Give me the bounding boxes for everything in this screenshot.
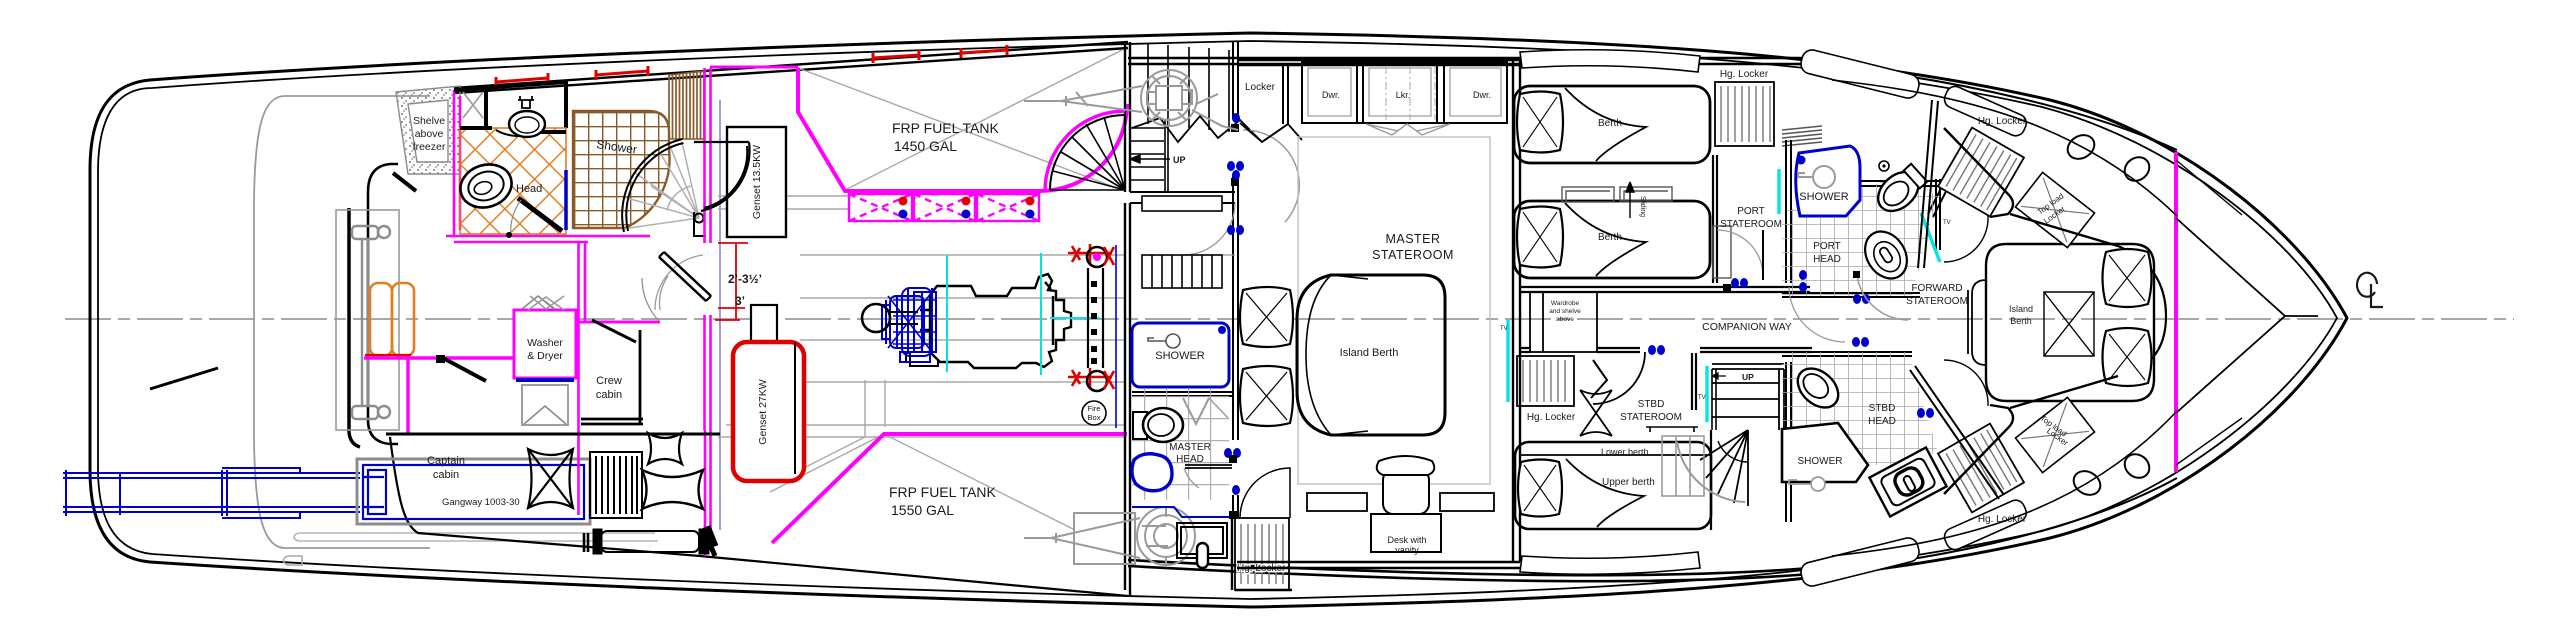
svg-text:Berth: Berth [2010,316,2032,326]
svg-text:FRP FUEL TANK: FRP FUEL TANK [889,484,997,500]
svg-text:STATEROOM: STATEROOM [1620,412,1682,423]
svg-text:STATEROOM: STATEROOM [1372,248,1454,262]
svg-text:SHOWER: SHOWER [1155,350,1205,362]
svg-text:1550 GAL: 1550 GAL [891,502,954,518]
svg-text:PORT: PORT [1813,241,1841,252]
svg-text:Hg. Locker: Hg. Locker [1527,412,1576,423]
svg-text:STBD: STBD [1638,399,1665,410]
svg-text:cabin: cabin [433,469,459,481]
svg-text:Island: Island [2009,304,2033,314]
svg-text:HEAD: HEAD [1813,254,1841,265]
svg-text:Genset 27KW: Genset 27KW [757,379,769,444]
svg-text:vanity: vanity [1395,545,1419,555]
svg-text:2’-3½’: 2’-3½’ [728,272,762,286]
svg-text:Head: Head [516,183,542,195]
svg-text:Captain: Captain [427,455,465,467]
svg-text:Lkr.: Lkr. [1396,90,1411,100]
svg-text:Hg. Locker: Hg. Locker [1720,69,1769,80]
svg-text:3’: 3’ [735,294,745,308]
svg-text:Shelve: Shelve [413,115,445,127]
svg-text:freezer: freezer [413,141,446,153]
svg-text:TV: TV [1500,326,1508,332]
svg-text:Hg. Locker: Hg. Locker [1978,116,2027,127]
svg-text:STATEROOM: STATEROOM [1906,296,1968,307]
svg-text:MASTER: MASTER [1169,442,1211,453]
svg-text:above: above [1556,316,1574,323]
svg-text:Fire: Fire [1088,404,1101,413]
svg-text:SHOWER: SHOWER [1798,456,1843,467]
svg-text:Desk with: Desk with [1387,535,1426,545]
svg-text:MASTER: MASTER [1385,232,1440,246]
svg-text:Wardrobe: Wardrobe [1551,300,1580,307]
svg-text:Sliding: Sliding [1639,196,1646,217]
svg-text:Island Berth: Island Berth [1340,347,1399,359]
svg-text:& Dryer: & Dryer [527,350,563,362]
svg-text:Dwr.: Dwr. [1473,90,1491,100]
svg-text:above: above [415,128,444,140]
svg-text:FORWARD: FORWARD [1911,283,1962,294]
svg-text:Dwr.: Dwr. [1322,90,1340,100]
svg-text:SHOWER: SHOWER [1799,191,1849,203]
svg-text:cabin: cabin [596,389,622,401]
svg-text:Berth: Berth [1598,232,1622,243]
svg-text:and shelve: and shelve [1549,308,1581,315]
svg-text:HEAD: HEAD [1868,416,1896,427]
svg-text:COMPANION WAY: COMPANION WAY [1702,321,1792,333]
svg-text:Washer: Washer [527,337,563,349]
svg-text:Locker: Locker [1245,82,1276,93]
svg-text:STATEROOM: STATEROOM [1720,219,1782,230]
svg-text:TV: TV [1943,220,1951,226]
svg-text:Lower berth: Lower berth [1601,447,1649,457]
svg-text:UP: UP [1173,155,1186,165]
svg-text:FRP FUEL TANK: FRP FUEL TANK [892,120,1000,136]
svg-text:STBD: STBD [1869,403,1896,414]
svg-text:UP: UP [1742,372,1754,382]
svg-text:Genset 13.5KW: Genset 13.5KW [751,145,763,219]
svg-text:Crew: Crew [596,375,622,387]
svg-text:1450 GAL: 1450 GAL [894,138,957,154]
svg-text:Gangway 1003-30: Gangway 1003-30 [442,497,520,508]
svg-text:HEAD: HEAD [1176,454,1204,465]
svg-text:Berth: Berth [1598,118,1622,129]
svg-text:TV: TV [1698,395,1706,401]
svg-text:Upper berth: Upper berth [1602,477,1655,488]
svg-text:Box: Box [1088,413,1101,422]
svg-text:PORT: PORT [1737,206,1765,217]
